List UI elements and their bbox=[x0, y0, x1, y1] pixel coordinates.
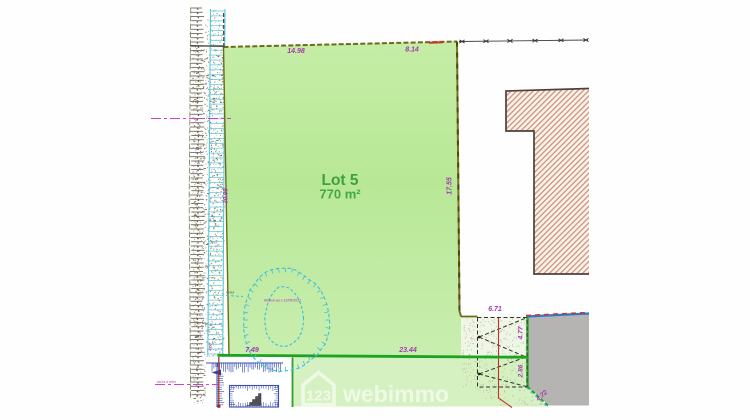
svg-text:17.55: 17.55 bbox=[447, 177, 454, 195]
svg-text:4.77: 4.77 bbox=[518, 326, 525, 340]
svg-text:6.71: 6.71 bbox=[488, 306, 502, 313]
svg-text:2.86: 2.86 bbox=[518, 364, 525, 378]
svg-text:23.44: 23.44 bbox=[398, 347, 417, 354]
svg-text:4.50: 4.50 bbox=[208, 342, 213, 351]
svg-text:x mur: x mur bbox=[226, 291, 235, 295]
svg-text:7.49: 7.49 bbox=[245, 347, 259, 354]
svg-text:webimmo: webimmo bbox=[342, 381, 449, 407]
svg-text:770 m²: 770 m² bbox=[319, 187, 361, 202]
svg-text:Relevé au x 12/05/2021: Relevé au x 12/05/2021 bbox=[264, 299, 301, 303]
svg-text:accès à créer: accès à créer bbox=[157, 380, 177, 384]
svg-text:8.14: 8.14 bbox=[405, 47, 419, 54]
svg-text:30.99: 30.99 bbox=[223, 188, 230, 204]
svg-text:123: 123 bbox=[306, 388, 331, 405]
svg-text:14.98: 14.98 bbox=[287, 48, 305, 55]
